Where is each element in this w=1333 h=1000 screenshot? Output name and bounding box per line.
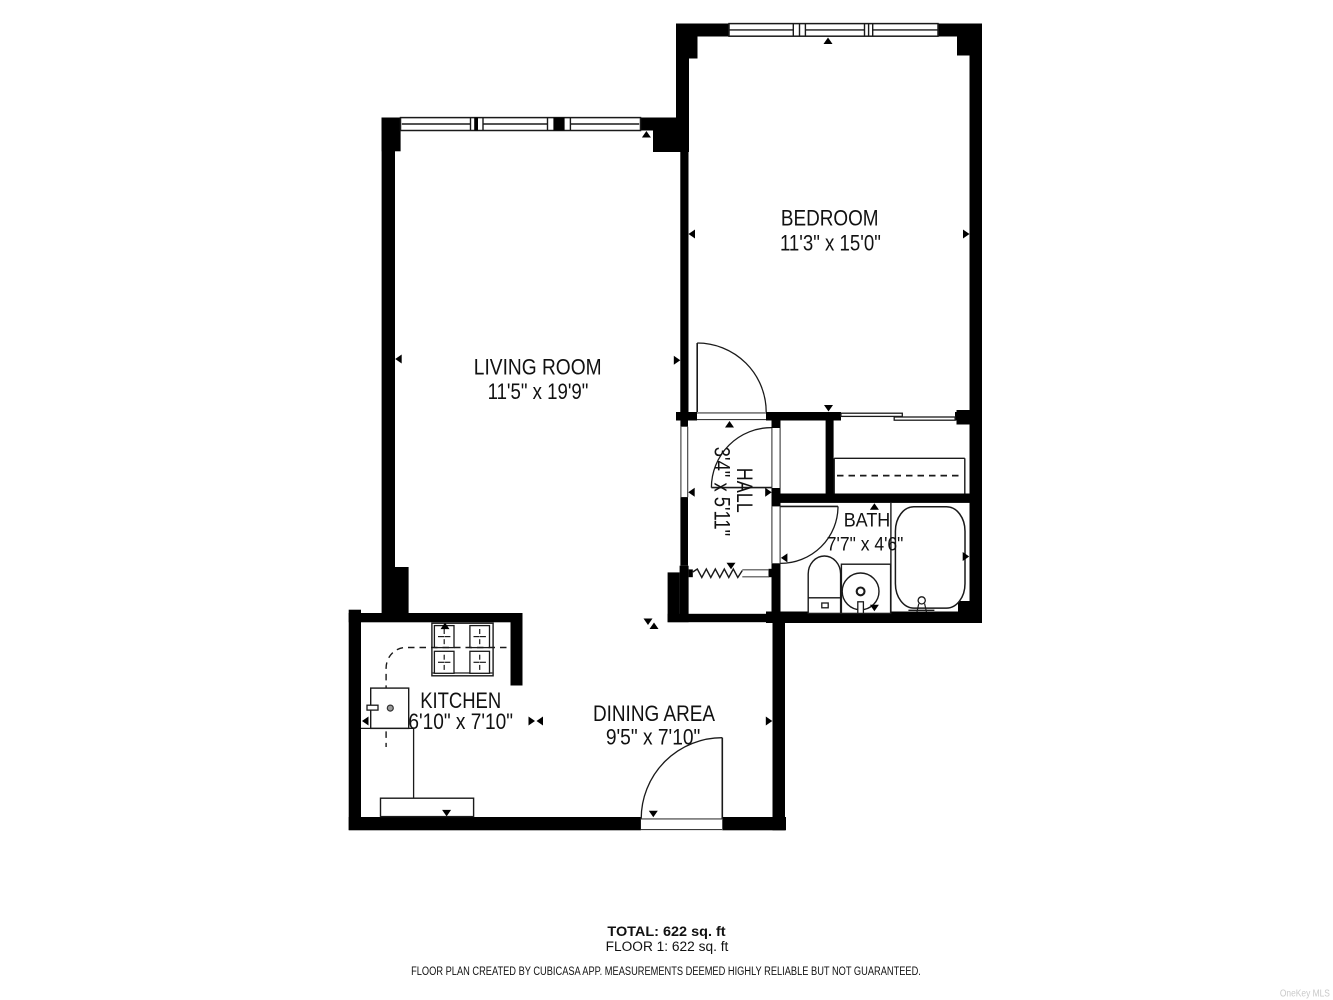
svg-text:11'5" x 19'9": 11'5" x 19'9" (488, 379, 589, 404)
svg-text:3'4" x 5'11": 3'4" x 5'11" (709, 447, 734, 536)
svg-text:BEDROOM: BEDROOM (781, 206, 879, 231)
svg-text:7'7" x 4'6": 7'7" x 4'6" (827, 533, 904, 555)
svg-text:LIVING ROOM: LIVING ROOM (474, 355, 602, 380)
svg-text:11'3" x 15'0": 11'3" x 15'0" (780, 231, 881, 256)
svg-text:FLOOR 1: 622 sq. ft: FLOOR 1: 622 sq. ft (606, 939, 729, 955)
svg-text:9'5" x 7'10": 9'5" x 7'10" (606, 725, 701, 750)
svg-text:DINING AREA: DINING AREA (593, 701, 716, 726)
svg-text:BATH: BATH (844, 509, 891, 531)
svg-text:HALL: HALL (732, 468, 757, 513)
svg-text:6'10" x 7'10": 6'10" x 7'10" (408, 709, 513, 734)
svg-text:TOTAL: 622 sq. ft: TOTAL: 622 sq. ft (607, 924, 725, 940)
svg-text:OneKey MLS: OneKey MLS (1280, 988, 1330, 1000)
svg-text:FLOOR PLAN CREATED BY CUBICASA: FLOOR PLAN CREATED BY CUBICASA APP. MEAS… (411, 964, 921, 978)
